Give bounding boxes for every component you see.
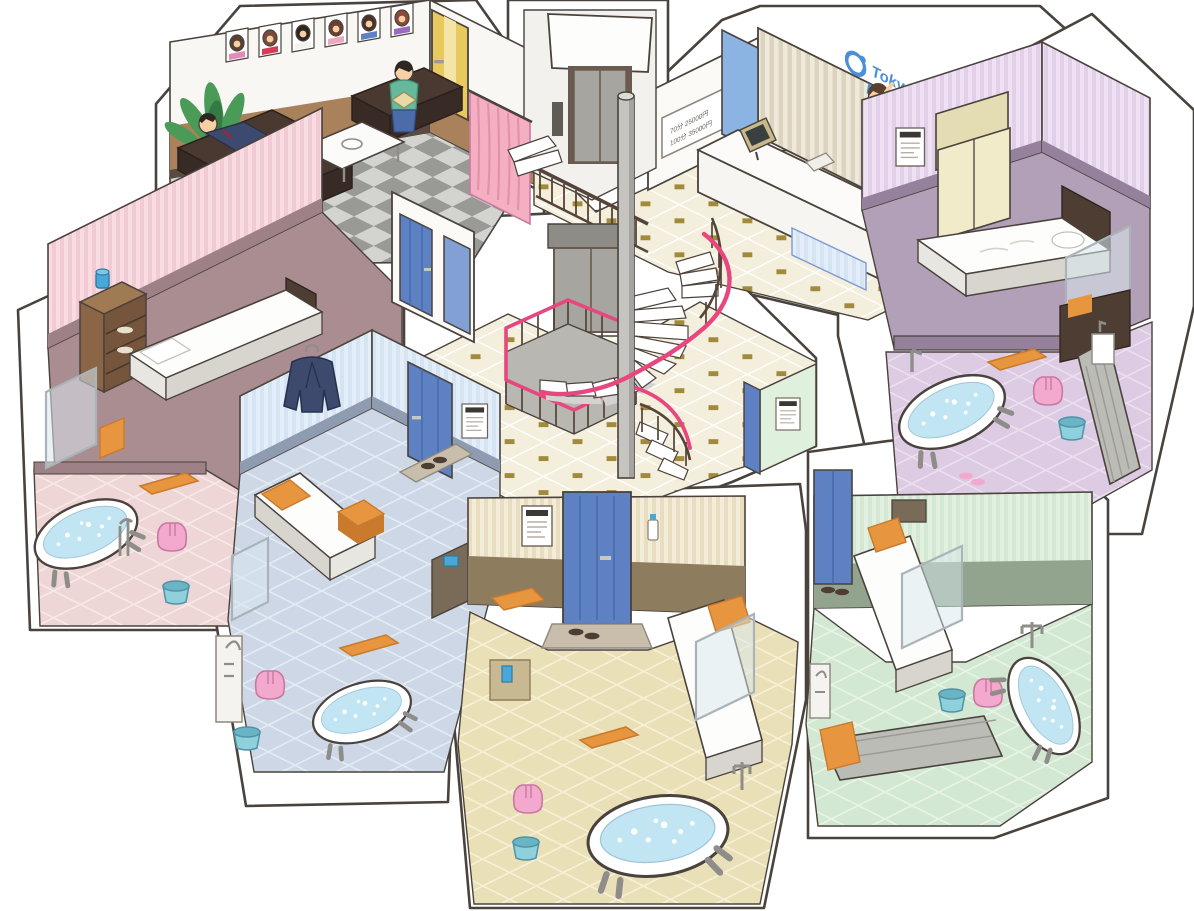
hall-blue-door-2 xyxy=(444,236,470,334)
wash-bucket xyxy=(513,837,539,860)
wash-stool xyxy=(256,671,285,699)
wardrobe xyxy=(936,92,1010,240)
wash-bucket xyxy=(163,581,189,604)
wash-stool xyxy=(158,523,187,551)
tissue-box xyxy=(444,556,458,566)
pillow xyxy=(1052,232,1084,248)
shoes xyxy=(821,587,835,593)
thermos xyxy=(96,269,109,288)
elevator-header-panel xyxy=(548,14,652,72)
corner-sink xyxy=(810,664,830,718)
elevator-call-panel xyxy=(552,102,563,136)
purple-room xyxy=(862,42,1152,524)
door-handle xyxy=(434,60,444,63)
entry-sign xyxy=(776,398,800,430)
orange-pillow xyxy=(820,722,860,770)
bathhouse-cutaway-illustration: 70分 25000円 100分 35000円 Tokyo Bubblyland xyxy=(0,0,1194,911)
wash-bucket xyxy=(939,689,965,712)
stair-pole xyxy=(618,92,634,478)
wash-bucket xyxy=(1059,417,1085,440)
soap-bottle xyxy=(502,666,512,682)
blue-room xyxy=(216,330,500,772)
room-rules-sign xyxy=(522,506,552,546)
wash-bucket xyxy=(234,727,260,750)
green-room xyxy=(806,470,1095,826)
wash-stool xyxy=(514,785,543,813)
slippers xyxy=(959,473,973,480)
hall-blue-door-1 xyxy=(400,214,432,316)
room-rules-sign xyxy=(462,404,488,438)
scene-canvas: 70分 25000円 100分 35000円 Tokyo Bubblyland xyxy=(0,0,1194,911)
room-rules-sign xyxy=(896,128,925,166)
wash-stool xyxy=(1034,377,1063,405)
shower-console xyxy=(216,636,242,722)
green-room-locker xyxy=(814,470,852,595)
